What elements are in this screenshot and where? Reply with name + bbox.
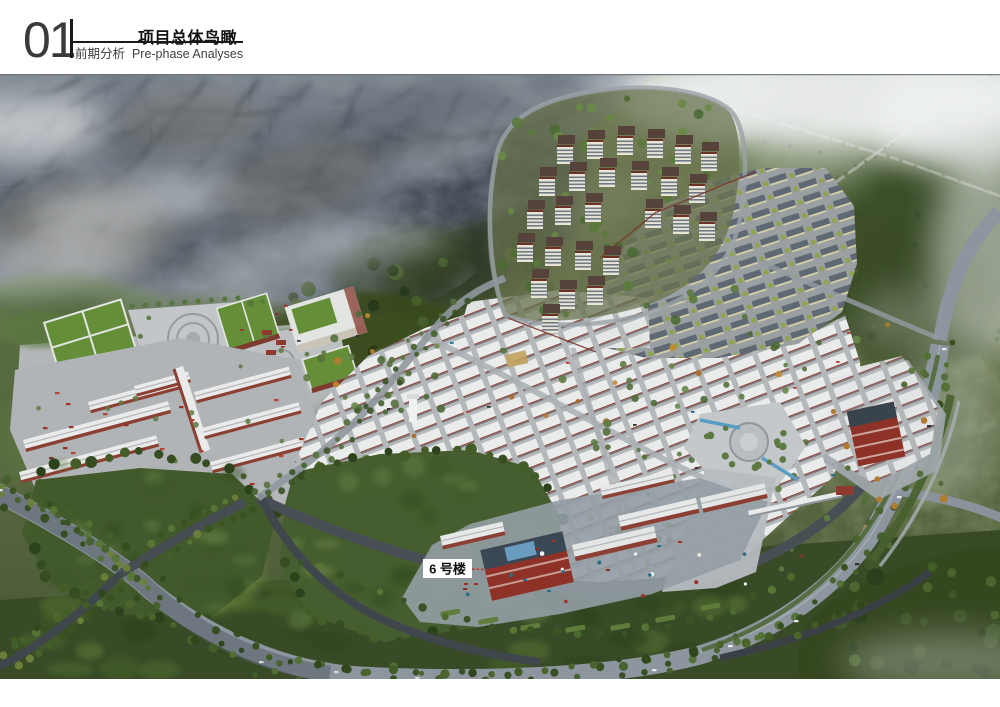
- svg-text:6 号楼: 6 号楼: [429, 562, 466, 577]
